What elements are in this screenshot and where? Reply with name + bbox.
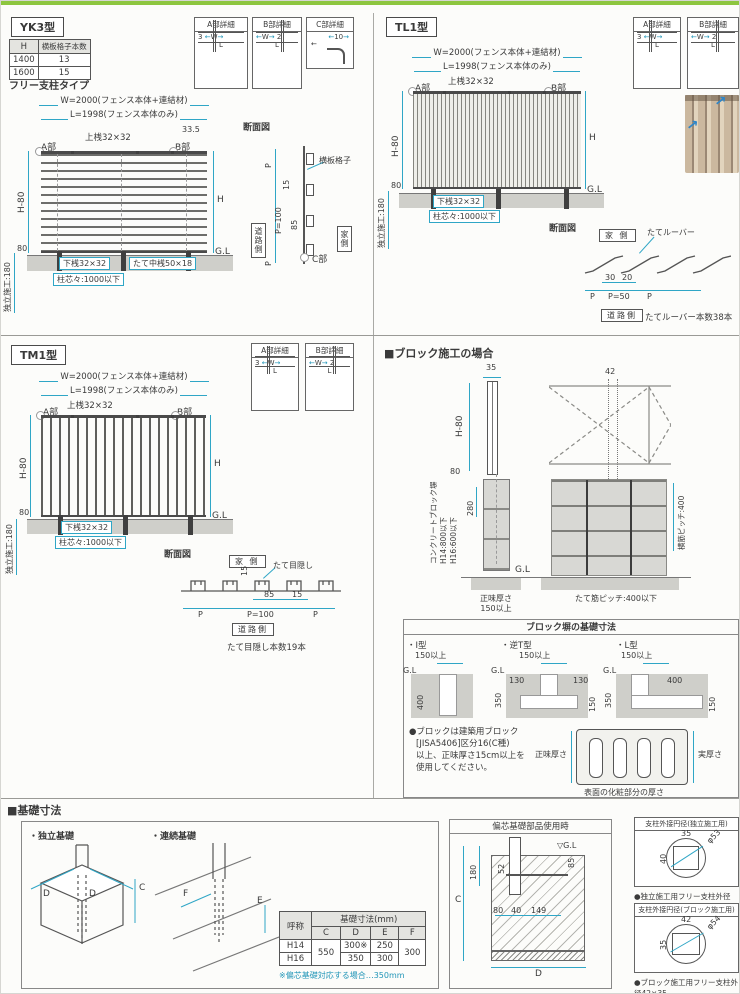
base-i-dimline xyxy=(437,663,463,664)
tm1-h80-dimline xyxy=(30,415,31,517)
tm1-gl-label: G.L xyxy=(212,511,227,521)
tl1-h-dimline xyxy=(585,91,586,189)
dim-label: 3 xyxy=(637,33,641,41)
circle1-h-label: 40 xyxy=(659,854,668,864)
tl1-count-label: たてルーバー本数38本 xyxy=(645,311,732,323)
col-c: C xyxy=(312,927,341,940)
continuous-e-label: E xyxy=(257,896,263,906)
block-note-line4: 使用してください。 xyxy=(416,761,492,773)
block-note-line3: 以上、正味厚さ15cm以上を xyxy=(416,749,525,761)
yk3-gl-label: G.L xyxy=(215,247,230,257)
ecc-52-label: 52 xyxy=(497,864,506,874)
base-t-130l: 130 xyxy=(509,676,524,685)
yk3-th-h: H xyxy=(10,40,39,54)
yk3-h-label: H xyxy=(217,195,224,205)
cross-actual-label: 実厚さ xyxy=(698,749,722,760)
tm1-title: TM1型 xyxy=(20,349,57,362)
continuous-foundation-label: ・連続基礎 xyxy=(151,829,196,842)
section-slat xyxy=(306,184,314,196)
tm1-road-side-box: 道路側 xyxy=(232,623,274,636)
tm1-fence-panel xyxy=(41,415,206,517)
yk3-85-label: 85 xyxy=(290,220,299,230)
base-t-350: 350 xyxy=(494,693,503,708)
block-35-label: 35 xyxy=(486,363,496,372)
dim-label: W xyxy=(262,33,269,41)
tl1-title: TL1型 xyxy=(395,21,428,34)
independent-d2-label: D xyxy=(89,889,96,899)
yk3-install-dimline xyxy=(14,253,15,313)
yk3-h-dimline xyxy=(213,151,214,253)
tm1-p1-label: P xyxy=(198,610,203,619)
tl1-80-label: 80 xyxy=(391,181,401,190)
independent-c-label: C xyxy=(139,883,145,893)
tl1-pitch-label: 柱芯々:1000以下 xyxy=(429,210,500,223)
yk3-th-count: 横板格子本数 xyxy=(38,40,90,54)
fence-post xyxy=(564,189,569,209)
independent-foundation-drawing xyxy=(29,843,141,967)
tm1-15b-label: 15 xyxy=(292,590,302,599)
dim-label: L xyxy=(273,367,277,375)
tl1-30-label: 30 xyxy=(605,273,615,282)
ecc-80-dimline xyxy=(495,915,561,916)
block-tate-pitch-label: たて筋ピッチ:400以下 xyxy=(575,593,657,604)
block-gl-label: G.L xyxy=(515,565,530,575)
block-note-line2: [JISA5406]区分16(C種) xyxy=(416,737,510,749)
dim-label: 10 xyxy=(334,33,343,41)
tl1-l-dim: L=1998(フェンス本体のみ) xyxy=(404,60,590,72)
tl1-h-label: H xyxy=(589,133,596,143)
block-h80-label: H-80 xyxy=(455,416,465,437)
yk3-80-label: 80 xyxy=(17,244,27,253)
block-base-box-title: ブロック塀の基礎寸法 xyxy=(403,620,739,635)
tm1-pitch-label: 柱芯々:1000以下 xyxy=(55,536,126,549)
tm1-bottomrail-label: 下桟32×32 xyxy=(61,521,112,534)
base-t-150: 150以上 xyxy=(519,650,550,661)
block-80-label: 80 xyxy=(450,467,460,476)
eccentric-anchor-rod xyxy=(506,874,568,876)
fence-post xyxy=(496,189,501,209)
yk3-detail-c-title: C部詳細 xyxy=(307,18,353,32)
cross-surface-label: 表面の化粧部分の厚さ xyxy=(584,787,664,798)
yk3-bottomrail-label: 下桟32×32 xyxy=(59,257,110,270)
val-c: 550 xyxy=(312,940,341,966)
tm1-w-dim: W=2000(フェンス本体+連結材) xyxy=(29,370,219,382)
dim-label: L xyxy=(328,367,332,375)
yk3-midrail-label: たて中桟50×18 xyxy=(129,257,196,270)
yk3-section-dimline xyxy=(275,149,276,263)
yk3-h80-dimline xyxy=(28,151,29,253)
tm1-section-title: 断面図 xyxy=(164,547,191,560)
ecc-d-label: D xyxy=(535,969,542,979)
circle1-w-label: 35 xyxy=(681,829,691,838)
yk3-335-dim: 33.5 xyxy=(182,125,200,134)
yk3-road-side-box: 道路側 xyxy=(251,223,266,258)
divider-vertical xyxy=(373,13,374,798)
tl1-detail-b-title: B部詳細 xyxy=(688,18,738,32)
tm1-install-dimline xyxy=(16,519,17,575)
block-side-pillar xyxy=(483,479,510,571)
block-front-brace-drawing xyxy=(549,385,671,465)
block-cross-drawing xyxy=(576,729,688,785)
tl1-p2-label: P xyxy=(647,292,652,301)
tm1-h-dimline xyxy=(210,415,211,517)
section-slat xyxy=(306,153,314,165)
yk3-detail-c: C部詳細 ←10→ ← xyxy=(306,17,354,69)
tl1-title-box: TL1型 xyxy=(386,17,437,37)
ecc-85-label: 85 xyxy=(567,858,576,868)
tl1-p50-label: P=50 xyxy=(608,292,630,301)
foundation-title: ■基礎寸法 xyxy=(7,802,61,818)
foundation-table: 呼称 基礎寸法(mm) C D E F H14 550 300※ 250 300… xyxy=(279,911,426,966)
base-l-150: 150以上 xyxy=(621,650,652,661)
tm1-85-label: 85 xyxy=(264,590,274,599)
yk3-detail-a-title: A部詳細 xyxy=(195,18,247,32)
block-net-label-2: 150以上 xyxy=(469,603,523,614)
block-wall-label-3: H16:600以下 xyxy=(448,517,459,564)
table-row: 1400 13 xyxy=(10,54,91,67)
yk3-p-top: P xyxy=(264,163,273,168)
yk3-15-label: 15 xyxy=(282,180,291,190)
tl1-louver-label: たてルーバー xyxy=(647,227,695,238)
yk3-detail-b: B部詳細 ←W→ 2 L xyxy=(252,17,302,89)
block-yoko-pitch-label: 横筋ピッチ:400 xyxy=(676,496,687,550)
base-t-130r: 130 xyxy=(573,676,588,685)
yk3-p-bottom: P xyxy=(264,261,273,266)
tl1-3020-dimline xyxy=(602,282,636,283)
tl1-w-dim: W=2000(フェンス本体+連結材) xyxy=(402,46,592,58)
base-i-400: 400 xyxy=(416,695,425,710)
block-front-footing xyxy=(541,578,679,590)
eccentric-gl-label: ▽G.L xyxy=(557,841,576,850)
divider-horizontal-2 xyxy=(1,798,740,799)
yk3-home-side-box: 家側 xyxy=(337,226,352,252)
block-42-label: 42 xyxy=(605,367,615,376)
yk3-title: YK3型 xyxy=(20,21,55,34)
yk3-pitch-label: 柱芯々:1000以下 xyxy=(53,273,124,286)
col-f: F xyxy=(399,927,426,940)
yk3-install-label: 独立施工:180 xyxy=(2,262,13,312)
tm1-install-label: 独立施工:180 xyxy=(4,524,15,574)
base-l-dimline xyxy=(643,663,669,664)
tl1-install-label: 独立施工:180 xyxy=(376,198,387,248)
yk3-h80-label: H-80 xyxy=(17,192,27,213)
yk3-c-label: C部 xyxy=(312,252,327,265)
yk3-detail-b-title: B部詳細 xyxy=(253,18,301,32)
c-profile-shape xyxy=(327,48,345,64)
base-t-150b: 150 xyxy=(588,697,597,712)
ecc-c-label: C xyxy=(455,895,461,905)
yk3-title-box: YK3型 xyxy=(11,17,64,37)
yk3-subtitle: フリー支柱タイプ xyxy=(9,77,89,92)
tm1-detail-b: B部詳細 ←W→ 2 L xyxy=(305,343,354,411)
row-h16: H16 xyxy=(280,953,312,966)
yk3-h-1400: 1400 xyxy=(10,54,39,67)
col-d: D xyxy=(341,927,371,940)
tl1-detail-b: B部詳細 ←W→ 2 L xyxy=(687,17,739,89)
tl1-bottomrail-label: 下桟32×32 xyxy=(433,195,484,208)
tl1-h80-dimline xyxy=(402,91,403,189)
tm1-p2-label: P xyxy=(313,610,318,619)
yk3-section-profile xyxy=(303,146,305,264)
val-e16: 300 xyxy=(371,953,399,966)
tl1-detail-a: A部詳細 3 ←W→ L xyxy=(633,17,681,89)
ecc-c-dimline xyxy=(463,846,464,961)
yk3-detail-a: A部詳細 3 ←W→ L xyxy=(194,17,248,89)
tm1-count-label: たて目隠し本数19本 xyxy=(227,641,306,653)
eccentric-post xyxy=(509,837,521,895)
ecc-180-dimline xyxy=(479,846,480,886)
continuous-foundation-drawing xyxy=(153,843,279,973)
tl1-h80-label: H-80 xyxy=(391,136,401,157)
block-280-label: 280 xyxy=(466,501,475,516)
val-d14: 300※ xyxy=(341,940,371,953)
block-side-footing xyxy=(471,578,521,590)
yk3-section-title: 断面図 xyxy=(243,120,270,133)
yk3-count-table: H 横板格子本数 1400 13 1600 15 xyxy=(9,39,91,80)
tm1-title-box: TM1型 xyxy=(11,345,66,365)
tm1-screen-label: たて目隠し xyxy=(273,560,313,571)
tm1-h-label: H xyxy=(214,459,221,469)
yk3-p100-label: P=100 xyxy=(274,207,283,234)
base-l-400: 400 xyxy=(667,676,682,685)
tl1-ground xyxy=(399,193,604,208)
yk3-count-13: 13 xyxy=(38,54,90,67)
independent-foundation-label: ・独立基礎 xyxy=(29,829,74,842)
base-l-350: 350 xyxy=(604,693,613,708)
ecc-149-label: 149 xyxy=(531,906,546,915)
yk3-toprail-label: 上桟32×32 xyxy=(85,131,131,143)
base-l-150b: 150 xyxy=(708,697,717,712)
tl1-fence-panel xyxy=(413,91,581,189)
cross-actual-dimline xyxy=(693,731,694,783)
ecc-80-label: 80 xyxy=(493,906,503,915)
tm1-p100-label: P=100 xyxy=(247,610,274,619)
fence-post xyxy=(188,515,193,535)
col-e: E xyxy=(371,927,399,940)
circle2-h-label: 35 xyxy=(659,940,668,950)
base-i-150: 150以上 xyxy=(415,650,446,661)
yk3-c-joint-circle xyxy=(300,253,309,262)
tm1-h80-label: H-80 xyxy=(19,458,29,479)
tl1-p-dimline xyxy=(585,290,701,291)
continuous-f-label: F xyxy=(183,889,188,899)
table-header-dims: 基礎寸法(mm) xyxy=(312,912,426,927)
fence-post xyxy=(121,251,126,271)
block-280-dimline xyxy=(476,487,477,517)
block-front-wall xyxy=(551,479,667,576)
eccentric-title: 偏芯基礎部品使用時 xyxy=(449,820,612,834)
tl1-detail-a-title: A部詳細 xyxy=(634,18,680,32)
independent-d1-label: D xyxy=(43,889,50,899)
val-f: 300 xyxy=(399,940,426,966)
yk3-fence-panel xyxy=(41,151,207,253)
ecc-d-dimline xyxy=(491,967,586,968)
block-h80-dimline xyxy=(469,383,470,471)
block-note-line1: ●ブロックは建築用ブロック xyxy=(409,725,518,737)
tl1-install-dimline xyxy=(388,191,389,249)
block-side-post xyxy=(487,381,498,475)
circle-box-independent: 支柱外接円径(独立施工用) 35 40 φ53 xyxy=(634,817,739,887)
base-l-gl: G.L xyxy=(603,666,616,675)
val-d16: 350 xyxy=(341,953,371,966)
val-e14: 250 xyxy=(371,940,399,953)
top-accent-band xyxy=(1,1,740,5)
foundation-note: ※偏芯基礎対応する場合…350mm xyxy=(279,970,405,981)
dim-label: 3 xyxy=(198,33,202,41)
tm1-p-dimline xyxy=(183,608,335,609)
base-t-dimline xyxy=(541,663,567,664)
tl1-20-label: 20 xyxy=(622,273,632,282)
circle-box-block: 支柱外接円径(ブロック施工用) 42 35 φ54 xyxy=(634,903,739,973)
yk3-w-dim: W=2000(フェンス本体+連結材) xyxy=(29,94,219,106)
tl1-toprail-label: 上桟32×32 xyxy=(448,75,494,87)
ecc-40-label: 40 xyxy=(511,906,521,915)
cross-net-dimline xyxy=(571,731,572,783)
table-row: H14 550 300※ 250 300 xyxy=(280,940,426,953)
tm1-8515-dimline xyxy=(253,599,308,600)
row-h14: H14 xyxy=(280,940,312,953)
table-header-name: 呼称 xyxy=(280,912,312,940)
tl1-p1-label: P xyxy=(590,292,595,301)
yk3-slat-label: 横板格子 xyxy=(319,155,351,166)
circle2-w-label: 42 xyxy=(681,915,691,924)
base-l-drawing xyxy=(616,674,708,718)
tl1-section-title: 断面図 xyxy=(549,221,576,234)
block-section-title: ■ブロック施工の場合 xyxy=(384,345,493,361)
tm1-screen-profile-drawing xyxy=(181,573,341,595)
eccentric-base-strip xyxy=(491,951,585,961)
tm1-80-label: 80 xyxy=(19,508,29,517)
tm1-l-dim: L=1998(フェンス本体のみ) xyxy=(31,384,217,396)
block-35-dimline xyxy=(483,377,501,378)
cross-net-label: 正味厚さ xyxy=(535,749,567,760)
block-yoko-dimline xyxy=(673,483,674,551)
tm1-detail-a: A部詳細 3 ←W→ L xyxy=(251,343,299,411)
divider-horizontal-1 xyxy=(1,335,740,336)
tl1-gl-label: G.L xyxy=(587,185,602,195)
ecc-180-label: 180 xyxy=(469,865,478,880)
spec-sheet-page: YK3型 H 横板格子本数 1400 13 1600 15 フリー支柱タイプ A… xyxy=(0,0,740,994)
tl1-home-side-box: 家 側 xyxy=(599,229,636,242)
circle2-note: ●ブロック施工用フリー支柱外径42×35 xyxy=(634,977,739,994)
dim-label: W xyxy=(697,33,704,41)
base-t-gl: G.L xyxy=(491,666,504,675)
section-slat xyxy=(306,215,314,227)
tm1-toprail-label: 上桟32×32 xyxy=(67,399,113,411)
tl1-road-side-box: 道路側 xyxy=(601,309,643,322)
yk3-l-dim: L=1998(フェンス本体のみ) xyxy=(31,108,217,120)
fence-post xyxy=(123,515,128,535)
